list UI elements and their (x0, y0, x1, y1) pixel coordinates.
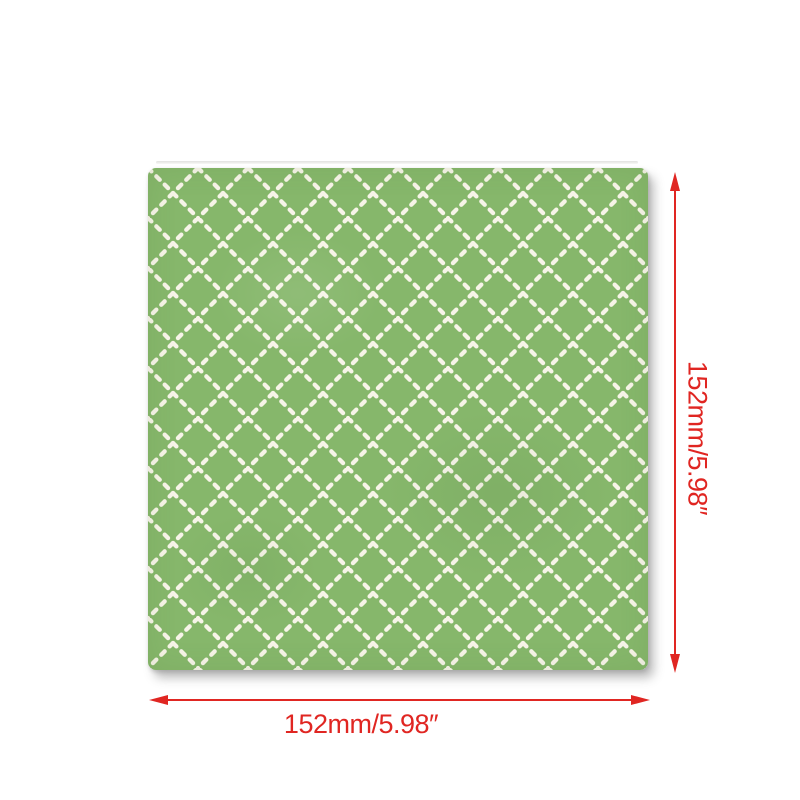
arrow-right-icon (631, 695, 650, 705)
backing-sheet-edge (156, 161, 638, 164)
fabric-swatch (148, 168, 648, 670)
lattice-pattern-graphic (148, 168, 648, 670)
width-dimension-label: 152mm/5.98″ (284, 711, 438, 738)
width-dimension-line (168, 699, 631, 702)
arrow-up-icon (670, 172, 680, 191)
product-photo-canvas: 152mm/5.98″ 152mm/5.98″ (0, 0, 800, 800)
height-dimension-line (674, 191, 677, 654)
height-dimension-label: 152mm/5.98″ (684, 361, 711, 515)
height-dimension-arrow (668, 172, 682, 673)
width-dimension-arrow (149, 693, 650, 707)
arrow-down-icon (670, 654, 680, 673)
arrow-left-icon (149, 695, 168, 705)
